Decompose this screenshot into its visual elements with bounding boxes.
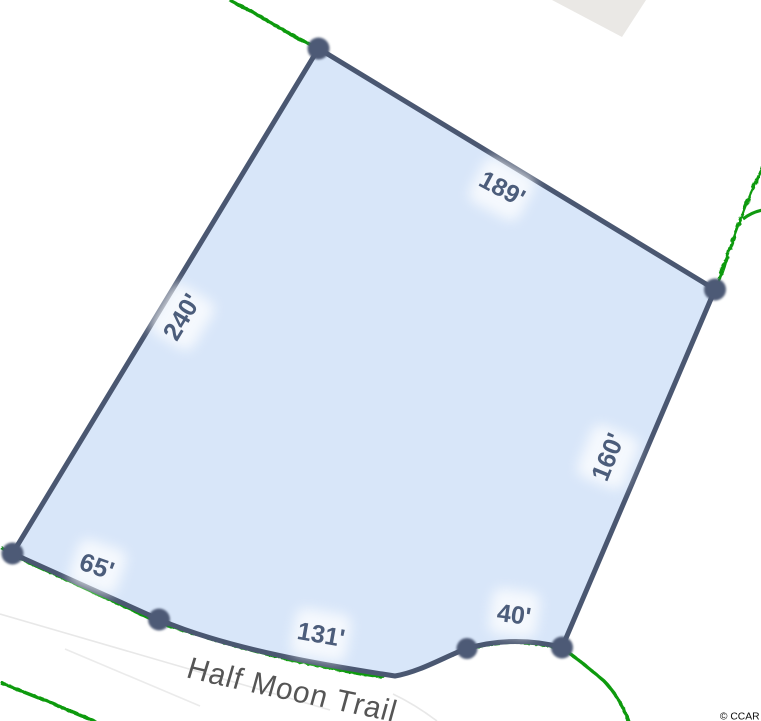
svg-text:© CCAR: © CCAR: [720, 712, 760, 721]
svg-text:40': 40': [495, 599, 532, 631]
